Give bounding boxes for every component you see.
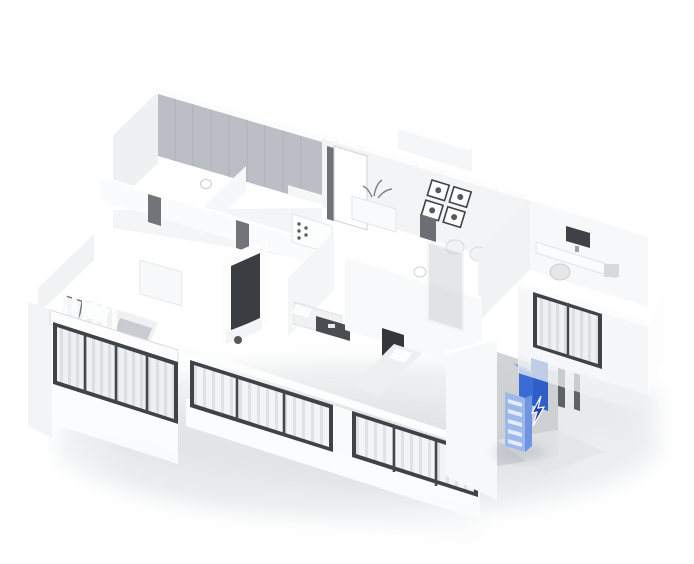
toilet [201,180,212,189]
floorplan-canvas [0,0,694,564]
floorplan-render [0,0,694,564]
glass-balcony-block [113,87,324,206]
balcony-left-wall [28,302,52,438]
door-opening [148,194,161,226]
wing-right-wall [648,291,664,395]
toilet [414,267,426,277]
tv-panel [231,253,260,331]
entry-doorway [327,146,334,221]
speaker [234,336,242,344]
wardrobe [140,260,182,306]
window-pier [333,405,352,458]
entry-section-wall [446,340,497,500]
shower-glass [428,242,463,331]
desk-chair [550,264,570,280]
printer [604,264,619,277]
left-balcony [28,292,178,464]
